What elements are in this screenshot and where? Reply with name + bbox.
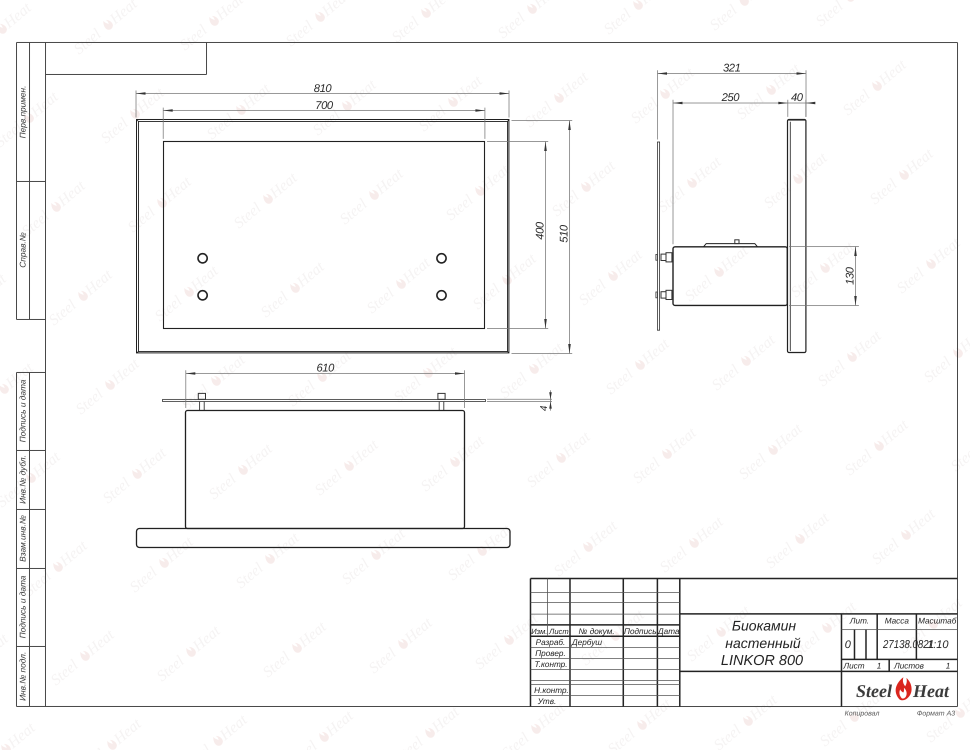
svg-text:0: 0 [845, 639, 852, 651]
svg-text:1: 1 [877, 662, 882, 671]
svg-text:321: 321 [723, 63, 741, 75]
svg-text:40: 40 [791, 92, 804, 104]
svg-text:№ докум.: № докум. [579, 627, 615, 636]
svg-text:Разраб.: Разраб. [536, 638, 566, 647]
svg-text:настенный: настенный [725, 635, 801, 651]
svg-text:130: 130 [845, 266, 857, 285]
svg-text:250: 250 [721, 92, 741, 104]
svg-text:Steel: Steel [856, 681, 892, 701]
svg-text:1:10: 1:10 [927, 639, 949, 651]
svg-text:700: 700 [315, 100, 334, 112]
svg-text:Heat: Heat [912, 681, 950, 701]
svg-text:510: 510 [559, 224, 571, 243]
svg-text:Провер.: Провер. [535, 649, 566, 658]
svg-text:Копировал: Копировал [845, 711, 880, 718]
svg-text:1: 1 [946, 662, 951, 671]
svg-text:Инв.№ дубл.: Инв.№ дубл. [17, 455, 27, 504]
svg-text:Подпись и дата: Подпись и дата [17, 379, 27, 442]
svg-text:Масштаб: Масштаб [918, 617, 957, 626]
svg-text:Подпись и дата: Подпись и дата [17, 575, 27, 638]
svg-text:Формат А3: Формат А3 [917, 711, 955, 718]
svg-text:400: 400 [534, 221, 546, 240]
svg-text:Лист: Лист [842, 662, 864, 671]
svg-text:Т.контр.: Т.контр. [534, 660, 567, 669]
svg-text:610: 610 [316, 363, 335, 375]
svg-text:Инв.№ подл.: Инв.№ подл. [17, 652, 27, 701]
svg-text:Масса: Масса [885, 617, 910, 626]
svg-text:Подпись: Подпись [624, 627, 656, 636]
svg-text:LINKOR 800: LINKOR 800 [721, 653, 803, 669]
svg-text:Изм.: Изм. [531, 627, 547, 636]
svg-text:Дербуш: Дербуш [571, 638, 602, 647]
svg-text:Утв.: Утв. [537, 697, 557, 706]
svg-text:Листов: Листов [893, 662, 925, 671]
svg-text:4: 4 [539, 405, 550, 411]
svg-text:Дата: Дата [657, 627, 680, 636]
svg-text:Справ.№: Справ.№ [18, 232, 28, 267]
svg-text:Биокамин: Биокамин [732, 618, 796, 634]
svg-text:Лист: Лист [548, 627, 569, 636]
svg-text:Взам.инв.№: Взам.инв.№ [17, 515, 27, 562]
svg-text:810: 810 [314, 83, 333, 95]
svg-text:Лит.: Лит. [849, 617, 869, 626]
svg-text:Перв.примен.: Перв.примен. [18, 86, 28, 139]
svg-text:Н.контр.: Н.контр. [534, 686, 569, 695]
